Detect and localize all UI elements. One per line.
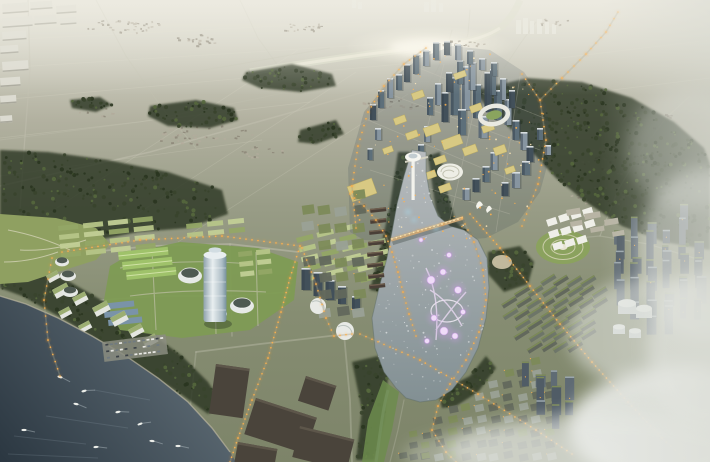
tree — [185, 106, 187, 108]
tree — [76, 309, 80, 313]
tree — [579, 189, 583, 193]
tree — [171, 119, 174, 122]
tree — [183, 366, 185, 368]
tree — [181, 373, 185, 377]
streetlight — [476, 221, 478, 223]
streetlight — [269, 241, 271, 243]
tree — [121, 185, 123, 187]
tree — [579, 128, 582, 131]
tree — [43, 277, 46, 280]
streetlight — [436, 411, 438, 413]
tree — [520, 268, 524, 272]
tree — [450, 397, 454, 401]
tower-dark-side — [502, 182, 504, 196]
streetlight — [410, 319, 412, 321]
tree — [176, 211, 179, 214]
tree — [124, 184, 126, 186]
tree — [93, 190, 97, 194]
streetlight — [385, 235, 387, 237]
streetlight — [440, 400, 442, 402]
village-house — [224, 138, 226, 140]
water-sparkle — [408, 179, 409, 180]
lit-window — [474, 405, 475, 406]
streetlight — [496, 243, 498, 245]
water-sparkle — [395, 381, 396, 382]
water-sparkle — [421, 364, 422, 365]
tree — [191, 387, 193, 389]
tree — [596, 132, 599, 135]
streetlight — [281, 306, 283, 308]
residential-tower-roof — [565, 376, 574, 378]
streetlight — [539, 171, 541, 173]
tree — [105, 102, 108, 105]
tree — [174, 111, 176, 113]
floating-orb — [440, 269, 446, 275]
tree — [322, 125, 324, 127]
residential-tower-roof — [536, 374, 546, 376]
tree — [371, 399, 374, 402]
tree — [574, 126, 578, 130]
tree — [66, 170, 69, 173]
tree — [366, 389, 370, 393]
streetlight — [253, 394, 255, 396]
streetlight — [430, 365, 432, 367]
streetlight — [449, 383, 451, 385]
tree — [41, 174, 45, 178]
water-sparkle — [386, 332, 388, 334]
tree — [569, 112, 571, 114]
tower-dark-side — [527, 146, 529, 162]
parked-car — [146, 339, 149, 341]
tree — [576, 187, 580, 191]
city-window-light — [507, 163, 508, 164]
streetlight — [470, 235, 472, 237]
tree — [75, 104, 77, 106]
city-window-light — [434, 146, 435, 147]
village-house — [272, 152, 275, 153]
tree — [140, 205, 142, 207]
streetlight — [43, 299, 45, 301]
streetlight — [353, 209, 355, 211]
streetlight — [359, 333, 361, 335]
tower-dark-side — [368, 148, 370, 160]
streetlight — [468, 354, 470, 356]
streetlight — [530, 201, 532, 203]
tree — [56, 190, 58, 192]
city-window-light — [418, 134, 420, 136]
water-sparkle — [392, 321, 393, 322]
tree — [531, 266, 533, 268]
tree — [99, 160, 101, 162]
water-sparkle — [398, 219, 400, 221]
village-house — [105, 108, 107, 110]
tree — [201, 123, 203, 125]
water-sparkle — [471, 330, 472, 331]
streetlight — [246, 413, 248, 415]
village-house — [172, 129, 174, 130]
streetlight — [353, 172, 355, 174]
streetlight — [467, 229, 469, 231]
water-sparkle — [378, 356, 379, 357]
tree — [52, 177, 56, 181]
city-window-light — [390, 141, 391, 142]
water-sparkle — [482, 325, 484, 327]
tree — [589, 152, 592, 155]
tree — [361, 425, 365, 429]
streetlight — [325, 317, 327, 319]
apartment-block — [334, 222, 347, 233]
streetlight — [270, 347, 272, 349]
streetlight — [526, 281, 528, 283]
tree — [174, 118, 177, 121]
streetlight — [493, 403, 495, 405]
tree — [76, 317, 80, 321]
tree — [496, 271, 498, 273]
tree — [195, 182, 198, 185]
streetlight — [467, 387, 469, 389]
tree — [524, 272, 528, 276]
streetlight — [541, 113, 543, 115]
tree — [195, 217, 197, 219]
water-sparkle — [404, 341, 405, 342]
tree — [102, 332, 104, 334]
water-sparkle — [438, 262, 440, 264]
water-sparkle — [394, 294, 395, 295]
streetlight — [433, 226, 435, 228]
tower-roof — [521, 132, 528, 134]
village-house — [204, 136, 206, 138]
streetlight — [387, 241, 389, 243]
streetlight — [523, 219, 525, 221]
tree — [13, 284, 16, 287]
tower-roof — [537, 128, 543, 130]
tree — [8, 171, 11, 174]
tree — [80, 106, 82, 108]
tower-roof — [418, 144, 424, 146]
tree — [192, 383, 196, 387]
streetlight — [465, 359, 467, 361]
streetlight — [401, 286, 403, 288]
streetlight — [379, 225, 381, 227]
city-window-light — [457, 126, 458, 127]
apartment-block — [319, 272, 332, 283]
tree — [373, 373, 377, 377]
tree — [474, 375, 478, 379]
tree — [65, 177, 68, 180]
city-window-light — [454, 216, 455, 217]
tree — [553, 101, 555, 103]
tree — [67, 195, 69, 197]
tree — [92, 184, 95, 187]
tree — [104, 229, 107, 232]
tree — [140, 183, 143, 186]
streetlight — [365, 336, 367, 338]
city-window-light — [401, 226, 402, 227]
tree — [63, 298, 65, 300]
parked-car — [111, 350, 114, 352]
tree — [86, 158, 88, 160]
streetlight — [251, 399, 253, 401]
streetlight — [394, 261, 396, 263]
tree — [358, 442, 360, 444]
tree — [579, 124, 582, 127]
streetlight — [85, 248, 87, 250]
apartment-block — [318, 223, 331, 234]
parked-car — [151, 338, 154, 340]
tree — [362, 367, 365, 370]
parked-car — [143, 352, 146, 354]
city-window-light — [502, 155, 503, 156]
tree — [509, 270, 513, 274]
tree — [182, 199, 186, 203]
water-sparkle — [439, 380, 441, 382]
tree — [63, 217, 67, 221]
tree — [55, 307, 59, 311]
tree — [102, 195, 106, 199]
streetlight — [424, 362, 426, 364]
tree — [164, 118, 166, 120]
parked-car — [115, 349, 118, 351]
tree — [497, 251, 500, 254]
tree — [564, 147, 566, 149]
tree — [327, 122, 330, 125]
tree — [77, 100, 81, 104]
city-window-light — [440, 105, 441, 106]
tree — [575, 159, 578, 162]
streetlight — [483, 281, 485, 283]
streetlight — [453, 220, 455, 222]
water-sparkle — [431, 249, 433, 251]
tree — [505, 250, 509, 254]
streetlight — [535, 189, 537, 191]
tree — [61, 164, 63, 166]
tree — [486, 379, 488, 381]
streetlight — [288, 282, 290, 284]
village-house — [171, 142, 174, 144]
tree — [552, 143, 556, 147]
parked-car — [160, 337, 163, 339]
tree — [110, 103, 113, 106]
tree — [573, 110, 575, 112]
streetlight — [402, 291, 404, 293]
tree — [153, 105, 157, 109]
tree — [129, 198, 133, 202]
boat-hull — [21, 429, 26, 431]
water-sparkle — [462, 282, 463, 283]
tree — [190, 125, 192, 127]
tree — [173, 191, 177, 195]
tree — [87, 179, 90, 182]
floating-orb — [419, 238, 423, 242]
floating-orb — [427, 276, 435, 284]
tree — [320, 140, 322, 142]
streetlight — [391, 251, 393, 253]
tree — [357, 365, 359, 367]
streetlight — [449, 221, 451, 223]
tree — [367, 371, 371, 375]
tree — [560, 113, 562, 115]
city-window-light — [387, 154, 388, 155]
tree — [473, 383, 476, 386]
streetlight — [540, 106, 542, 108]
streetlight — [413, 330, 415, 332]
tree — [73, 318, 76, 321]
tree — [106, 169, 108, 171]
lit-window — [398, 453, 399, 454]
water-sparkle — [409, 172, 411, 174]
parked-car — [124, 348, 127, 350]
tree — [362, 405, 364, 407]
tree — [192, 196, 196, 200]
streetlight — [50, 264, 52, 266]
streetlight — [456, 381, 458, 383]
village-house — [164, 133, 167, 135]
parked-car — [142, 339, 145, 341]
streetlight — [45, 315, 47, 317]
water-sparkle — [413, 350, 414, 351]
tree — [189, 219, 193, 223]
city-window-light — [482, 174, 483, 175]
village-house — [181, 127, 183, 128]
tree — [79, 313, 81, 315]
parked-car — [128, 341, 131, 343]
streetlight — [404, 297, 406, 299]
streetlight — [566, 332, 568, 334]
tree — [309, 137, 313, 141]
streetlight — [274, 332, 276, 334]
tree — [581, 102, 583, 104]
tree — [125, 195, 127, 197]
streetlight — [367, 111, 369, 113]
streetlight — [232, 452, 234, 454]
streetlight — [545, 139, 547, 141]
streetlight — [485, 293, 487, 295]
streetlight — [283, 301, 285, 303]
streetlight — [49, 271, 51, 273]
tree — [590, 180, 592, 182]
tree — [103, 179, 105, 181]
parked-car — [153, 351, 156, 353]
streetlight — [537, 183, 539, 185]
water-sparkle — [460, 354, 462, 356]
tree — [191, 213, 195, 217]
tree — [563, 176, 565, 178]
water-sparkle — [399, 226, 401, 228]
tree — [153, 200, 157, 204]
tree — [595, 109, 597, 111]
water-sparkle — [404, 322, 405, 323]
tree — [100, 106, 103, 109]
streetlight — [183, 237, 185, 239]
tulip-cup-inner — [409, 154, 418, 159]
apartment-block — [334, 206, 347, 217]
tree — [5, 156, 8, 159]
city-window-light — [428, 103, 429, 104]
residential-tower-roof — [552, 404, 559, 406]
streetlight — [401, 351, 403, 353]
parked-car — [134, 353, 137, 355]
water-sparkle — [472, 276, 474, 278]
spiral-rose-building — [437, 164, 463, 181]
streetlight — [361, 132, 363, 134]
streetlight — [298, 251, 300, 253]
streetlight — [457, 371, 459, 373]
tree — [213, 107, 216, 110]
tree — [33, 191, 37, 195]
tree — [515, 282, 517, 284]
tree — [99, 336, 102, 339]
water-sparkle — [412, 255, 414, 257]
tree — [482, 370, 484, 372]
water-sparkle — [466, 259, 467, 260]
tree — [14, 174, 16, 176]
streetlight — [489, 236, 491, 238]
tree — [205, 198, 208, 201]
parked-car — [124, 342, 127, 344]
streetlight — [355, 159, 357, 161]
streetlight — [304, 253, 306, 255]
city-window-light — [489, 139, 491, 141]
water-sparkle — [448, 278, 450, 280]
city-window-light — [494, 192, 496, 194]
streetlight — [103, 245, 105, 247]
tree — [158, 105, 161, 108]
streetlight — [363, 125, 365, 127]
streetlight — [257, 383, 259, 385]
city-window-light — [508, 137, 510, 139]
water-sparkle — [459, 317, 460, 318]
streetlight — [299, 245, 301, 247]
streetlight — [273, 337, 275, 339]
village-house — [160, 140, 163, 142]
parked-car — [156, 338, 159, 340]
tower-roof — [458, 109, 466, 111]
streetlight — [236, 442, 238, 444]
water-sparkle — [433, 380, 435, 382]
tower-roof — [502, 182, 509, 184]
streetlight — [359, 138, 361, 140]
streetlight — [251, 239, 253, 241]
tree — [162, 175, 164, 177]
water-sparkle — [421, 222, 423, 224]
water-sparkle — [419, 304, 420, 305]
tree — [504, 277, 506, 279]
tree — [568, 151, 571, 154]
tree — [54, 201, 56, 203]
water-sparkle — [411, 374, 412, 375]
tree — [489, 367, 491, 369]
tree — [198, 378, 202, 382]
water-sparkle — [410, 260, 411, 261]
tree — [171, 194, 173, 196]
water-sparkle — [440, 287, 442, 289]
tree — [363, 375, 365, 377]
streetlight — [44, 307, 46, 309]
apartment-block — [334, 289, 347, 300]
streetlight — [536, 294, 538, 296]
streetlight — [363, 205, 365, 207]
lit-window — [502, 394, 503, 395]
tree — [27, 151, 31, 155]
city-window-light — [495, 139, 497, 141]
tree — [19, 209, 22, 212]
streetlight — [365, 118, 367, 120]
tree — [456, 388, 459, 391]
tree — [365, 365, 367, 367]
water-sparkle — [460, 326, 462, 328]
streetlight — [301, 247, 303, 249]
streetlight — [339, 335, 341, 337]
